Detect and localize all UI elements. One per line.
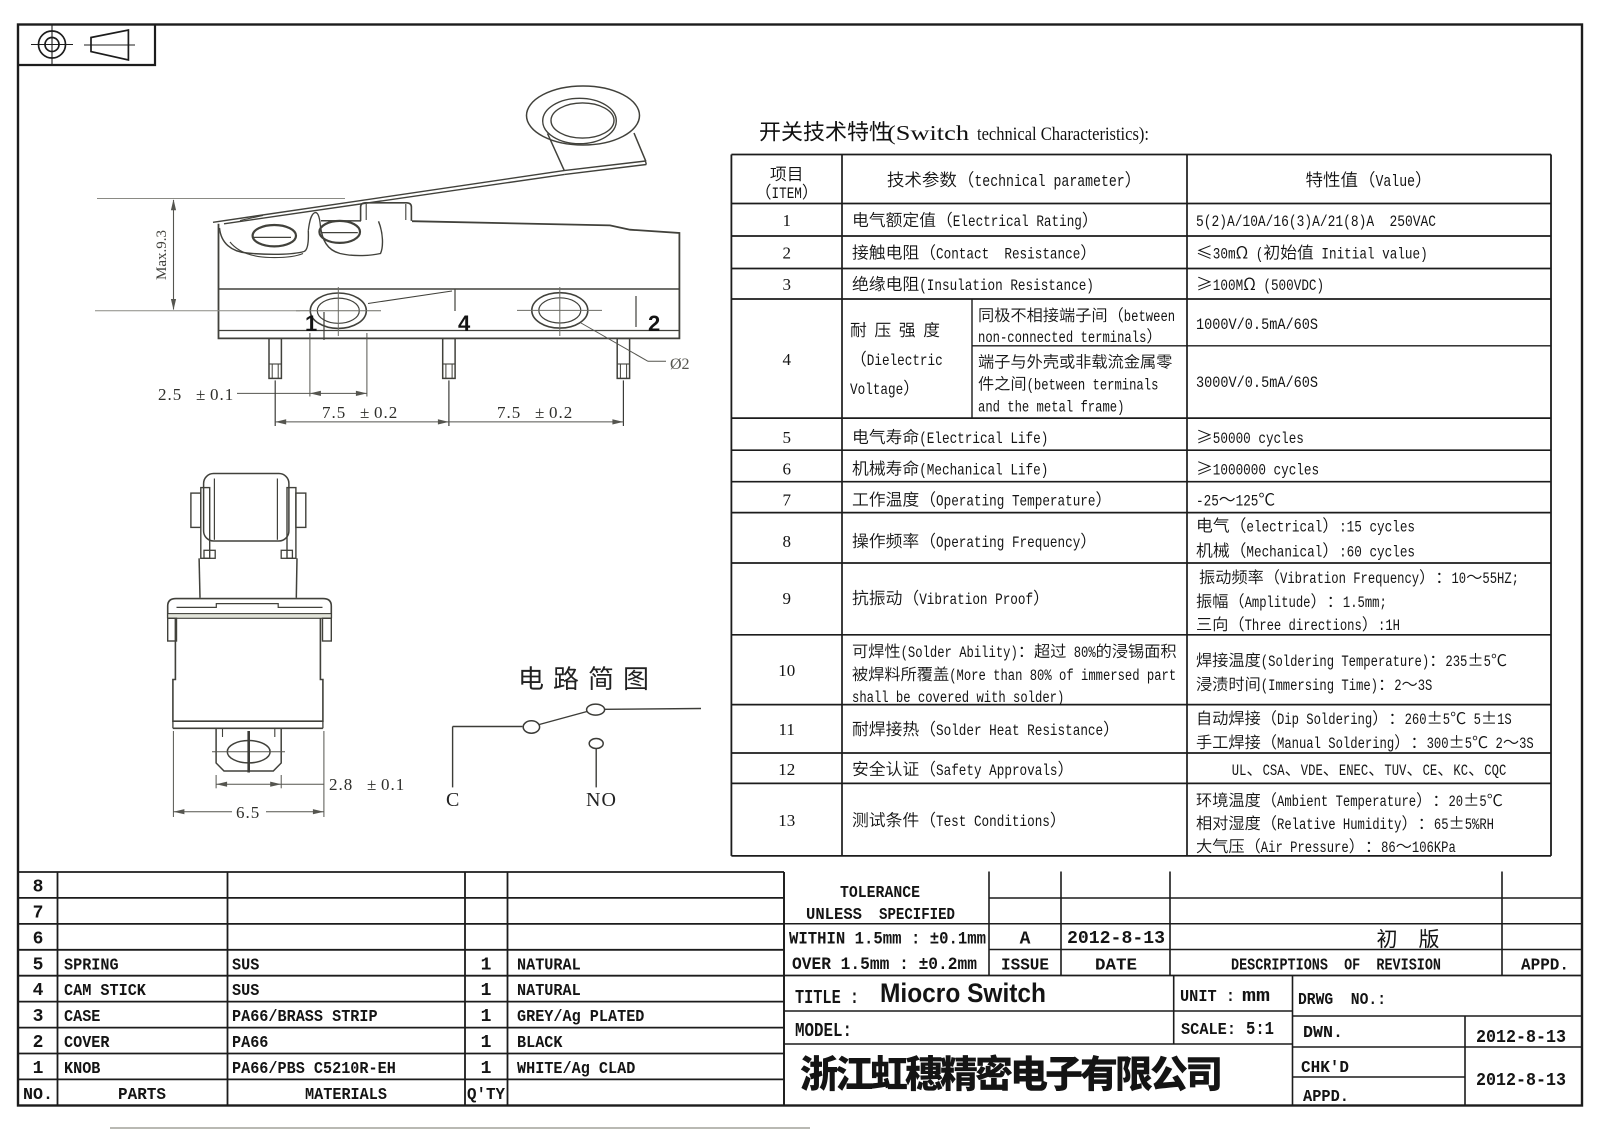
svg-text:Test Conditions: Test Conditions [936, 813, 1050, 831]
svg-text:5: 5 [782, 428, 791, 447]
svg-text:APPD.: APPD. [1521, 957, 1569, 976]
svg-text:DRWG NO.:: DRWG NO.: [1298, 991, 1386, 1010]
svg-text:(Switch: (Switch [887, 121, 970, 145]
svg-text:20: 20 [1449, 793, 1464, 811]
svg-text:and the metal frame): and the metal frame) [978, 399, 1124, 417]
svg-text:5: 5 [1484, 653, 1491, 671]
svg-text:0.1: 0.1 [381, 775, 405, 794]
svg-text:±: ± [360, 403, 369, 422]
svg-text:WHITE/Ag CLAD: WHITE/Ag CLAD [517, 1060, 635, 1079]
svg-text:1: 1 [481, 981, 492, 1001]
svg-text:6: 6 [33, 929, 44, 949]
svg-text:VDE: VDE [1301, 762, 1323, 780]
svg-text:(Electrical Life): (Electrical Life) [919, 430, 1048, 448]
svg-text:Ambient Temperature: Ambient Temperature [1277, 793, 1416, 811]
svg-text:Air Pressure: Air Pressure [1261, 839, 1349, 857]
svg-text:DESCRIPTIONS OF REVISION: DESCRIPTIONS OF REVISION [1231, 957, 1441, 976]
svg-text:Three directions: Three directions [1245, 617, 1362, 635]
svg-text:SUS: SUS [232, 982, 259, 1001]
svg-text:106KPa: 106KPa [1412, 839, 1456, 857]
svg-text:±: ± [367, 775, 376, 794]
svg-text:CSA: CSA [1263, 762, 1286, 780]
svg-text:7: 7 [782, 491, 791, 510]
svg-text:UL: UL [1232, 762, 1247, 780]
svg-text::1H: :1H [1378, 617, 1400, 635]
svg-text:80%: 80% [1066, 644, 1096, 662]
svg-text:Operating Temperature: Operating Temperature [936, 493, 1096, 511]
svg-text:55HZ;: 55HZ; [1482, 570, 1519, 588]
svg-text:Operating Frequency: Operating Frequency [936, 534, 1081, 552]
svg-text:8: 8 [782, 532, 791, 551]
svg-text:ENEC: ENEC [1339, 762, 1368, 780]
svg-text:KC: KC [1453, 762, 1468, 780]
svg-text:300: 300 [1427, 735, 1449, 753]
svg-text:5:1: 5:1 [1246, 1020, 1274, 1040]
svg-text:OVER 1.5mm : ±0.2mm: OVER 1.5mm : ±0.2mm [792, 955, 977, 975]
svg-text:9: 9 [782, 589, 791, 608]
svg-text:NO: NO [586, 789, 617, 811]
svg-text:2012-8-13: 2012-8-13 [1067, 928, 1165, 949]
svg-text:(More than 80% of immersed par: (More than 80% of immersed part [949, 667, 1176, 685]
svg-text:125: 125 [1236, 493, 1259, 511]
svg-text:(500VDC): (500VDC) [1256, 277, 1324, 295]
svg-text:DATE: DATE [1095, 957, 1137, 976]
svg-text:Q'TY: Q'TY [467, 1086, 506, 1105]
svg-text:SUS: SUS [232, 956, 259, 975]
svg-text:Dip Soldering: Dip Soldering [1277, 711, 1372, 729]
svg-text:PA66/BRASS STRIP: PA66/BRASS STRIP [232, 1008, 378, 1027]
svg-text:1: 1 [481, 1059, 492, 1079]
svg-text:1: 1 [33, 1059, 44, 1079]
svg-text:86: 86 [1381, 839, 1396, 857]
svg-text:3S: 3S [1418, 677, 1433, 695]
svg-text:2.5: 2.5 [158, 385, 182, 404]
svg-text:NATURAL: NATURAL [517, 982, 581, 1001]
svg-text:non-connected terminals: non-connected terminals [978, 329, 1146, 347]
svg-text:2012-8-13: 2012-8-13 [1476, 1027, 1566, 1048]
svg-text:3000V/0.5mA/60S: 3000V/0.5mA/60S [1196, 374, 1318, 392]
svg-text:5(2)A/10A/16(3)A/21(8)A 250VA: 5(2)A/10A/16(3)A/21(8)A 250VAC [1196, 213, 1436, 231]
svg-text:NATURAL: NATURAL [517, 956, 581, 975]
svg-text:shall be covered with solder): shall be covered with solder) [852, 689, 1064, 707]
svg-text:12: 12 [778, 760, 795, 779]
svg-text:1: 1 [305, 311, 317, 336]
svg-text:mm: mm [1242, 987, 1270, 1007]
svg-text:3S: 3S [1519, 735, 1534, 753]
svg-text:100M: 100M [1213, 277, 1243, 295]
svg-text:10: 10 [778, 661, 795, 680]
svg-text:TOLERANCE: TOLERANCE [840, 884, 920, 903]
svg-text:1.5mm;: 1.5mm; [1343, 594, 1387, 612]
svg-text:PARTS: PARTS [118, 1086, 166, 1105]
svg-text:1: 1 [782, 211, 791, 230]
svg-text:UNIT :: UNIT : [1180, 988, 1235, 1007]
svg-text:Mechanical: Mechanical [1246, 544, 1322, 562]
svg-text:(Immersing Time): (Immersing Time) [1261, 677, 1378, 695]
svg-text:2: 2 [648, 311, 660, 336]
svg-text:10: 10 [1452, 570, 1467, 588]
svg-text:1000000 cycles: 1000000 cycles [1213, 462, 1319, 480]
svg-text:4: 4 [33, 981, 44, 1001]
svg-text:KNOB: KNOB [64, 1060, 100, 1079]
svg-text:30m: 30m [1213, 246, 1236, 264]
svg-text:Solder Heat Resistance: Solder Heat Resistance [936, 722, 1103, 740]
svg-text:±: ± [196, 385, 205, 404]
svg-text:CE: CE [1423, 762, 1438, 780]
svg-text:5%RH: 5%RH [1465, 816, 1494, 834]
svg-text:1: 1 [481, 1033, 492, 1053]
svg-text:1S: 1S [1497, 711, 1512, 729]
svg-text:7.5: 7.5 [497, 403, 521, 422]
svg-text:Electrical Rating: Electrical Rating [953, 213, 1082, 231]
svg-text:(Insulation Resistance): (Insulation Resistance) [919, 277, 1094, 295]
svg-text:7: 7 [33, 903, 44, 923]
svg-text:1: 1 [481, 955, 492, 975]
svg-text:1: 1 [481, 1007, 492, 1027]
svg-text:CQC: CQC [1484, 762, 1506, 780]
svg-text:±: ± [535, 403, 544, 422]
svg-text:GREY/Ag PLATED: GREY/Ag PLATED [517, 1008, 644, 1027]
svg-text:C: C [446, 789, 460, 811]
svg-text:Safety Approvals: Safety Approvals [936, 762, 1058, 780]
svg-text:6: 6 [782, 460, 791, 479]
svg-text:Dielectric: Dielectric [867, 352, 943, 370]
svg-text:5: 5 [1466, 711, 1481, 729]
svg-text:DWN.: DWN. [1303, 1024, 1343, 1043]
svg-text:0.2: 0.2 [374, 403, 398, 422]
svg-text:3: 3 [33, 1007, 44, 1027]
svg-text:3: 3 [782, 275, 791, 294]
svg-text:0.2: 0.2 [549, 403, 573, 422]
svg-text:2: 2 [1488, 735, 1503, 753]
svg-text:5: 5 [33, 955, 44, 975]
svg-text:65: 65 [1434, 816, 1449, 834]
svg-text:(Solder Ability): (Solder Ability) [901, 644, 1018, 662]
svg-text:Initial value): Initial value) [1314, 246, 1428, 264]
svg-text:4: 4 [458, 311, 471, 336]
svg-text:4: 4 [782, 350, 791, 369]
svg-text:260: 260 [1405, 711, 1427, 729]
svg-text:(Mechanical Life): (Mechanical Life) [919, 462, 1048, 480]
svg-text:13: 13 [778, 811, 795, 830]
svg-text:-25: -25 [1196, 493, 1219, 511]
svg-text:BLACK: BLACK [517, 1034, 563, 1053]
svg-text:SPRING: SPRING [64, 956, 119, 975]
svg-text:(: ( [1248, 246, 1263, 264]
svg-text:1000V/0.5mA/60S: 1000V/0.5mA/60S [1196, 316, 1318, 334]
svg-text:11: 11 [779, 720, 795, 739]
svg-text:Manual Soldering: Manual Soldering [1277, 735, 1394, 753]
svg-text:PA66/PBS C5210R-EH: PA66/PBS C5210R-EH [232, 1060, 396, 1079]
svg-text:Voltage: Voltage [850, 381, 903, 399]
svg-text:Vibration Proof: Vibration Proof [919, 591, 1033, 609]
svg-text:between: between [1124, 308, 1175, 326]
svg-text:(Soldering Temperature): (Soldering Temperature) [1261, 653, 1429, 671]
svg-text:2012-8-13: 2012-8-13 [1476, 1070, 1566, 1091]
svg-text:NO.: NO. [23, 1086, 53, 1105]
svg-text:ITEM: ITEM [772, 185, 802, 203]
svg-text:technical Characteristics):: technical Characteristics): [977, 124, 1149, 145]
svg-text:Miocro Switch: Miocro Switch [880, 978, 1046, 1008]
svg-text:WITHIN 1.5mm : ±0.1mm: WITHIN 1.5mm : ±0.1mm [789, 930, 986, 950]
svg-text:MODEL:: MODEL: [795, 1020, 852, 1042]
svg-text:Relative Humidity: Relative Humidity [1277, 816, 1402, 834]
svg-text:APPD.: APPD. [1303, 1088, 1349, 1107]
svg-text:5: 5 [1479, 793, 1486, 811]
svg-text:CHK'D: CHK'D [1301, 1059, 1349, 1078]
svg-text:2: 2 [33, 1033, 44, 1053]
svg-text::15 cycles: :15 cycles [1339, 519, 1415, 537]
svg-text:5: 5 [1465, 735, 1472, 753]
svg-text:CASE: CASE [64, 1008, 100, 1027]
svg-text:TUV: TUV [1384, 762, 1407, 780]
svg-text:Value: Value [1376, 172, 1416, 191]
svg-text:UNLESS: UNLESS [806, 906, 862, 925]
svg-text:electrical: electrical [1246, 519, 1322, 537]
svg-text:0.1: 0.1 [210, 385, 234, 404]
svg-text:235: 235 [1445, 653, 1467, 671]
svg-text:Max.9.3: Max.9.3 [154, 230, 170, 280]
svg-text:Amplitude: Amplitude [1245, 594, 1311, 612]
svg-text:TITLE :: TITLE : [795, 987, 859, 1009]
svg-text:(between terminals: (between terminals [1027, 377, 1159, 395]
svg-text:MATERIALS: MATERIALS [305, 1086, 387, 1105]
svg-text:50000 cycles: 50000 cycles [1213, 430, 1304, 448]
svg-text:SPECIFIED: SPECIFIED [879, 906, 955, 925]
svg-text:ISSUE: ISSUE [1001, 957, 1049, 976]
svg-text:2: 2 [782, 244, 791, 263]
svg-text:Contact Resistance: Contact Resistance [936, 246, 1080, 264]
svg-text::60 cycles: :60 cycles [1339, 544, 1415, 562]
svg-text:Ø2: Ø2 [670, 356, 690, 373]
svg-text:8: 8 [33, 878, 44, 898]
svg-text:COVER: COVER [64, 1034, 110, 1053]
svg-text:2: 2 [1394, 677, 1401, 695]
svg-text:Vibration Frequency: Vibration Frequency [1280, 570, 1419, 588]
svg-text:7.5: 7.5 [322, 403, 346, 422]
svg-text:technical parameter: technical parameter [974, 172, 1124, 191]
svg-text:PA66: PA66 [232, 1034, 268, 1053]
svg-text:SCALE:: SCALE: [1181, 1021, 1236, 1040]
svg-text:6.5: 6.5 [236, 803, 260, 822]
svg-text:CAM STICK: CAM STICK [64, 982, 147, 1001]
svg-text:A: A [1020, 930, 1031, 950]
svg-text:5: 5 [1443, 711, 1450, 729]
svg-text:2.8: 2.8 [329, 775, 353, 794]
